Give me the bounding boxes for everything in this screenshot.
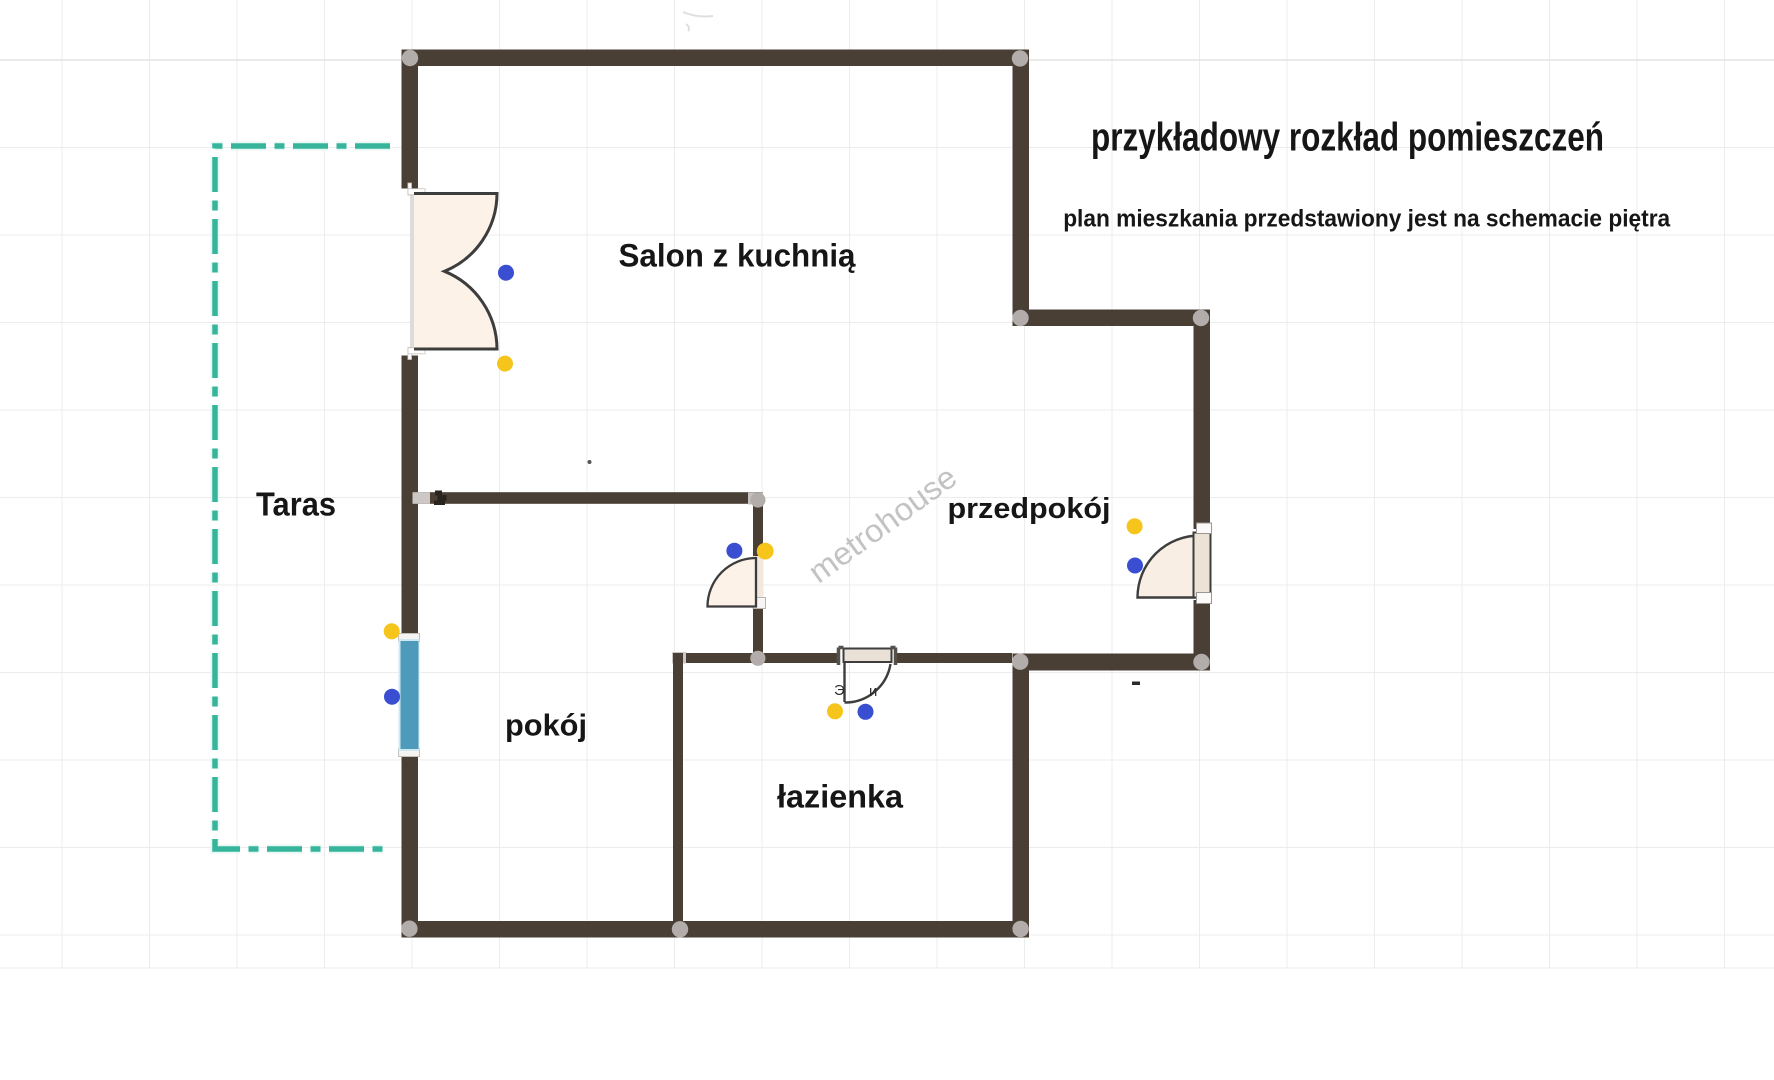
svg-text:Э: Э	[834, 682, 845, 699]
svg-text:и: и	[869, 683, 877, 700]
svg-text:metrohouse: metrohouse	[801, 458, 963, 589]
svg-text:łazienka: łazienka	[777, 779, 903, 815]
svg-text:przedpokój: przedpokój	[948, 493, 1111, 525]
svg-text:pokój: pokój	[505, 708, 587, 743]
svg-text:Salon z kuchnią: Salon z kuchnią	[619, 238, 856, 274]
svg-text:Taras: Taras	[256, 486, 336, 523]
svg-text:plan mieszkania przedstawiony: plan mieszkania przedstawiony jest na sc…	[1063, 206, 1671, 233]
svg-text:przykładowy rozkład pomieszcze: przykładowy rozkład pomieszczeń	[1091, 116, 1604, 160]
